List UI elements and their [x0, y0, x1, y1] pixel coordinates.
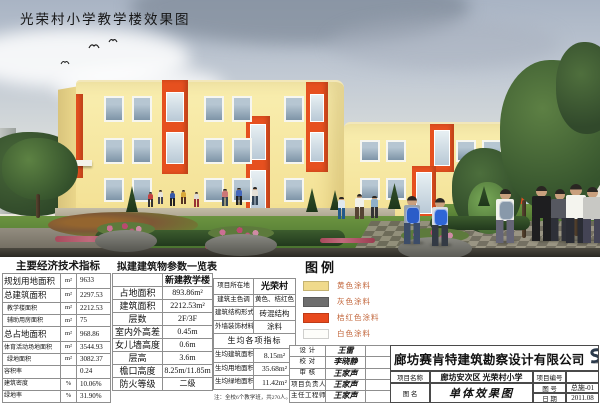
legend-swatch [303, 297, 329, 307]
table-row: 项目负责人王家声 [290, 379, 391, 390]
legend-swatch [303, 329, 329, 339]
economic-indicators-table: 规划用地面积m²9633 总建筑面积m²2297.53 教学楼面积m²2212.… [2, 273, 111, 403]
table-row: 生均建筑面积8.15m² [214, 348, 296, 362]
window [284, 96, 304, 122]
company-name: 廊坊赛肯特建筑勘察设计有限公司 [394, 349, 585, 368]
window [232, 96, 252, 122]
cloud [330, 18, 560, 70]
tree-trunk [36, 194, 40, 218]
table-row: 层高3.6m [113, 352, 213, 365]
legend-swatch [303, 281, 329, 291]
drawing-sheet: 光荣村小学教学楼效果图 [0, 0, 600, 403]
table-row: 校 对李晓静 [290, 357, 391, 368]
table-row: 层数2F/3F [113, 313, 213, 326]
person [170, 191, 175, 206]
table-row: 总建筑面积m²2297.53 [3, 288, 111, 303]
orange-window-column [162, 80, 188, 174]
window [132, 96, 152, 122]
window [104, 96, 124, 122]
window [284, 178, 304, 202]
title-block: 设 计王雷 校 对李晓静 审 核王家声 项目负责人王家声 主任工程师王家声 廊坊… [289, 345, 599, 403]
table-row: 项目所在地光荣村 [214, 279, 296, 295]
table-row: 教学楼面积m²2212.53 [3, 303, 111, 315]
person [181, 190, 186, 204]
table-row: 生均绿地面积11.42m² [214, 376, 296, 390]
table-row: 主任工程师王家声 [290, 391, 391, 402]
drawing-name-value: 单体效果图 [430, 383, 533, 403]
window [104, 138, 124, 164]
window [284, 138, 304, 164]
table-row: 生均各项指标 [214, 334, 296, 348]
legend-label: 桔红色涂料 [337, 312, 380, 323]
legend-title: 图例 [305, 257, 337, 276]
window [204, 178, 224, 202]
table-row: 建筑面积2212.53m² [113, 300, 213, 313]
person [371, 196, 378, 218]
date-label: 日 期 [533, 393, 566, 403]
legend-label: 黄色涂料 [337, 280, 371, 291]
table-row: 辅助用房面积m²75 [3, 315, 111, 327]
table-row: 建筑密度%10.06% [3, 378, 111, 390]
table-row: 女儿墙高度0.6m [113, 339, 213, 352]
project-name-label: 项目名称 [390, 371, 430, 383]
table-row: 新建教学楼 [113, 274, 213, 287]
table-row: 体育活动场地面积m²3544.93 [3, 341, 111, 353]
table-row: 总占地面积m²968.86 [3, 327, 111, 342]
window [386, 140, 406, 162]
architectural-rendering: 光荣村小学教学楼效果图 [0, 0, 600, 257]
orange-window-column [430, 124, 454, 172]
table-note: 注：全校6个教学班，共270人。 [214, 393, 298, 401]
person [583, 187, 600, 243]
project-info-table: 项目所在地光荣村 建筑主色调黄色、桔红色 建筑结构形式砖混结构 外墙装饰材料涂料… [213, 278, 296, 390]
person [338, 197, 345, 219]
drawing-no-label: 图 号 [533, 383, 566, 393]
legend-label: 白色涂料 [337, 328, 371, 339]
window [204, 138, 224, 164]
window [360, 140, 380, 162]
orange-window-column [306, 82, 328, 172]
person [236, 188, 242, 205]
legend-item: 黄色涂料 [303, 280, 371, 291]
company-logo-icon [587, 347, 599, 369]
person [194, 192, 199, 207]
econ-table-title: 主要经济技术指标 [8, 258, 108, 273]
table-row: 室内外高差0.45m [113, 326, 213, 339]
window [132, 138, 152, 164]
project-name-value: 廊坊安次区 光荣村小学 [430, 371, 533, 383]
project-no-value [566, 371, 599, 383]
table-row: 建筑结构形式砖混结构 [214, 307, 296, 321]
signature-table: 设 计王雷 校 对李晓静 审 核王家声 项目负责人王家声 主任工程师王家声 [289, 345, 391, 403]
legend-item: 灰色涂料 [303, 296, 371, 307]
window [232, 138, 252, 164]
table-row: 审 核王家声 [290, 368, 391, 379]
table-row: 设 计王雷 [290, 346, 391, 357]
company-cell: 廊坊赛肯特建筑勘察设计有限公司 [390, 345, 599, 371]
window [104, 178, 124, 202]
person [252, 187, 258, 205]
page-title: 光荣村小学教学楼效果图 [20, 8, 191, 28]
person [355, 194, 364, 219]
date-value: 2011.08 [566, 393, 599, 403]
table-row: 防火等级二级 [113, 378, 213, 391]
params-table-title: 拟建建筑物参数一览表 [112, 258, 222, 273]
person [404, 196, 420, 244]
person [148, 192, 153, 207]
person [432, 198, 448, 246]
window [232, 178, 252, 202]
bird-icon [108, 30, 118, 48]
drawing-name-label: 图 名 [390, 383, 430, 403]
bird-icon [60, 52, 70, 70]
table-row: 檐口高度8.25m/11.85m [113, 365, 213, 378]
drawing-no-value: 总施-01 [566, 383, 599, 393]
bird-icon [88, 36, 100, 54]
project-no-label: 项目编号 [533, 371, 566, 383]
table-row: 绿地面积m²3082.37 [3, 354, 111, 366]
legend-label: 灰色涂料 [337, 296, 371, 307]
table-row: 建筑主色调黄色、桔红色 [214, 295, 296, 307]
legend-swatch [303, 313, 329, 323]
info-panel: 主要经济技术指标 规划用地面积m²9633 总建筑面积m²2297.53 教学楼… [0, 257, 600, 403]
table-row: 占地面积893.86m² [113, 287, 213, 300]
flower-strip [320, 238, 375, 243]
person [496, 189, 514, 243]
pavement-edge [0, 248, 600, 257]
tree [2, 138, 78, 200]
person [222, 189, 228, 206]
table-row: 生均用地面积35.68m² [214, 362, 296, 376]
legend-item: 桔红色涂料 [303, 312, 380, 323]
planter [95, 222, 157, 252]
planter [205, 226, 277, 256]
window [204, 96, 224, 122]
person [158, 190, 163, 204]
table-row: 绿地率%31.90% [3, 390, 111, 402]
building-params-table: 新建教学楼 占地面积893.86m² 建筑面积2212.53m² 层数2F/3F… [112, 273, 213, 391]
table-row: 容积率0.24 [3, 366, 111, 378]
table-row: 规划用地面积m²9633 [3, 274, 111, 289]
table-row: 外墙装饰材料涂料 [214, 320, 296, 334]
legend-item: 白色涂料 [303, 328, 371, 339]
person [532, 186, 551, 241]
